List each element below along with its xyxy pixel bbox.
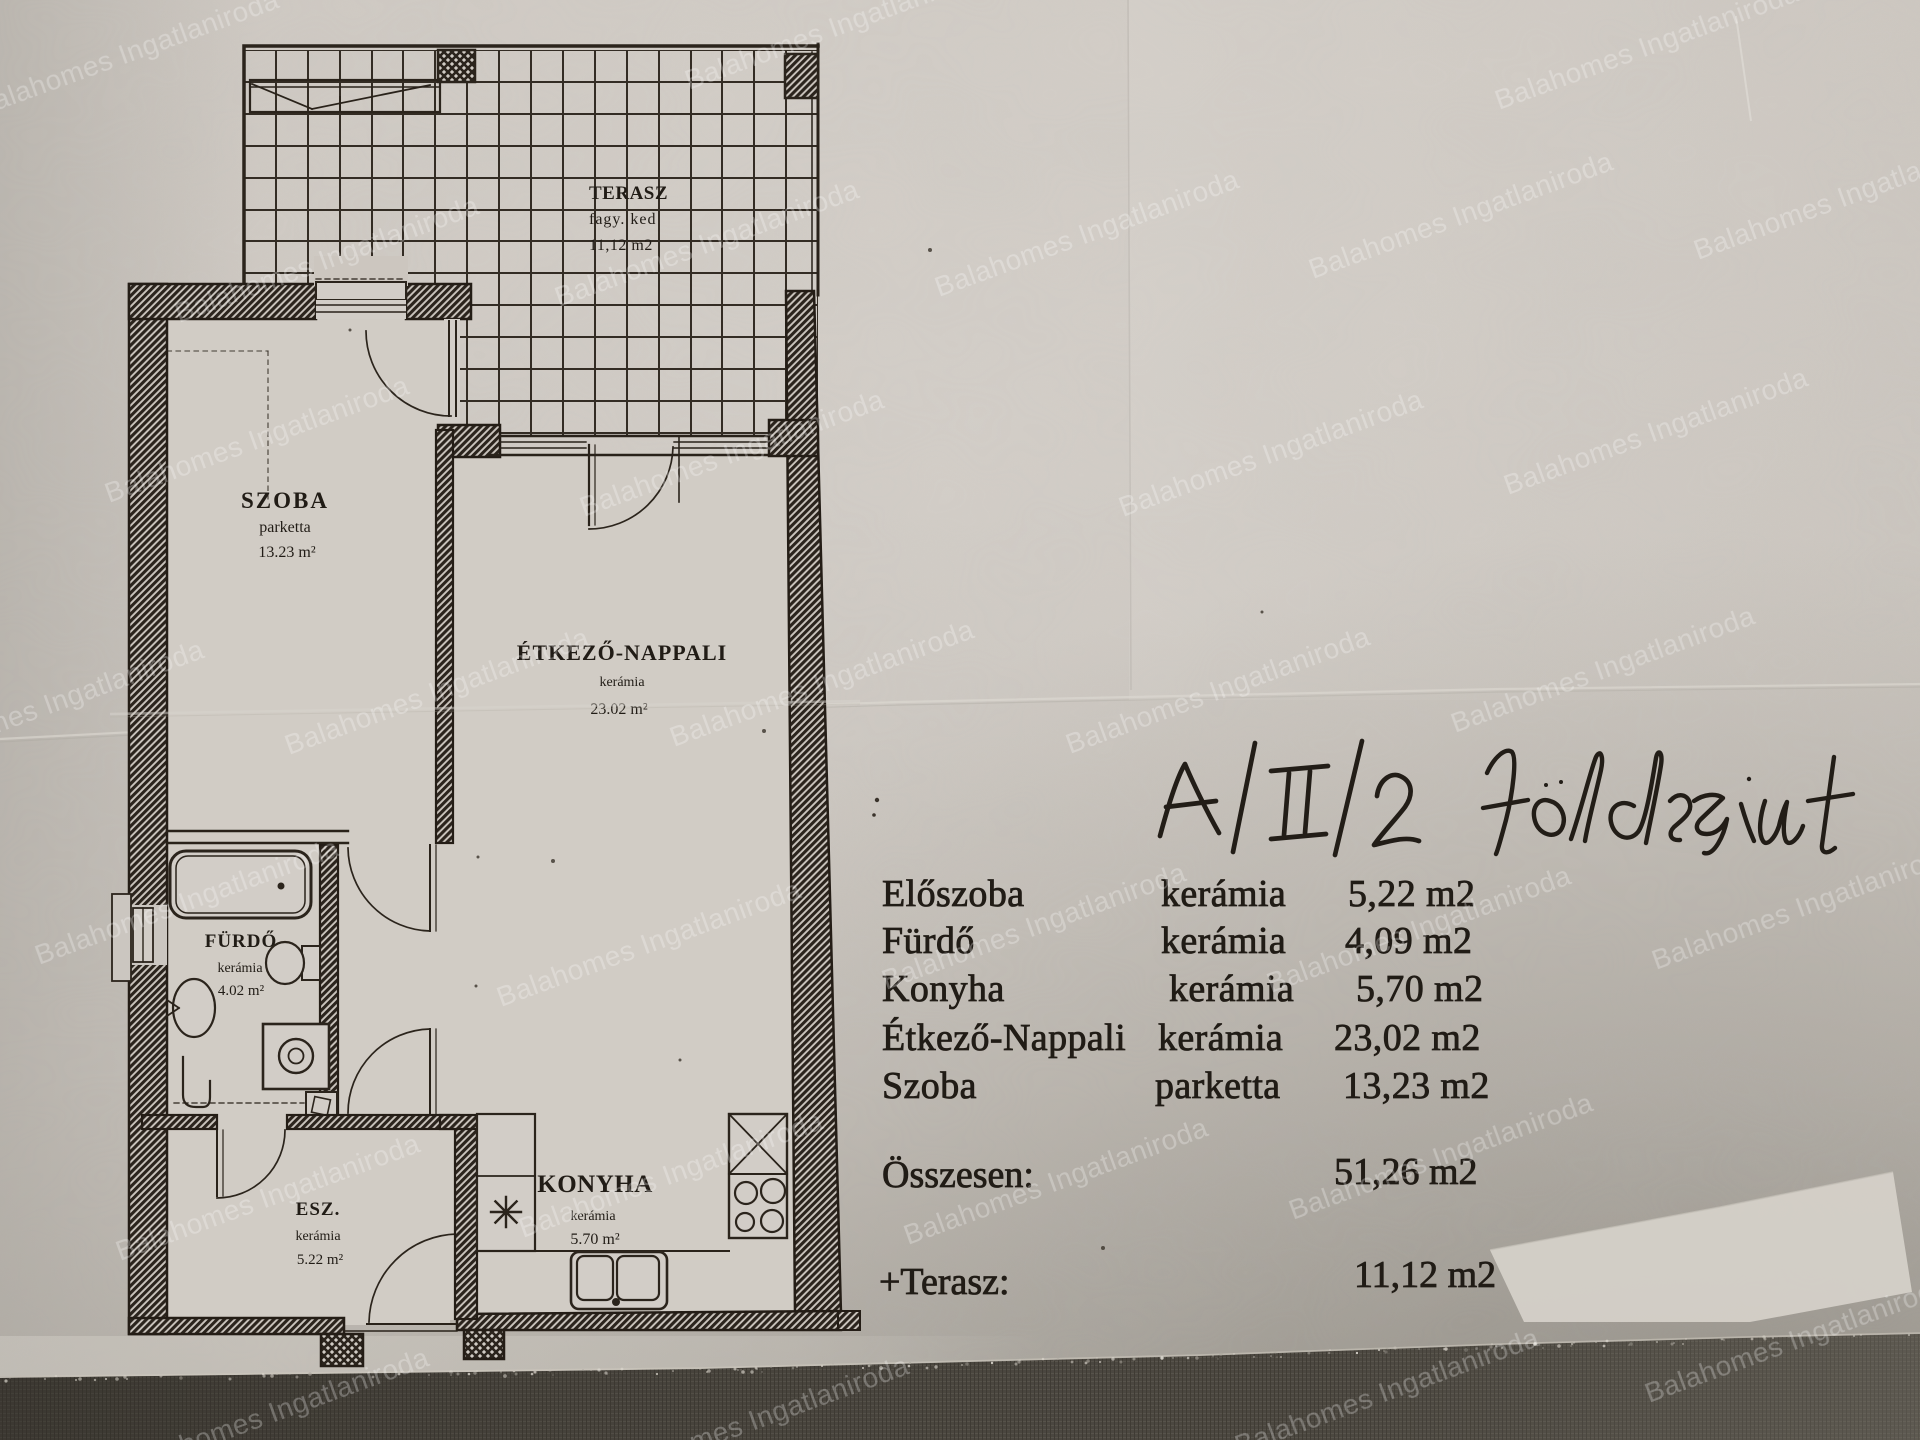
svg-text:+Terasz:: +Terasz: [879, 1261, 1010, 1303]
svg-text:kerámia: kerámia [295, 1229, 341, 1244]
svg-text:Előszoba: Előszoba [882, 873, 1025, 915]
svg-text:kerámia: kerámia [1161, 920, 1286, 962]
svg-text:5,70 m2: 5,70 m2 [1356, 968, 1483, 1010]
svg-text:kerámia: kerámia [1158, 1017, 1283, 1059]
svg-text:5.22 m²: 5.22 m² [297, 1252, 344, 1268]
svg-text:13.23 m²: 13.23 m² [258, 544, 315, 561]
svg-text:11,12 m2: 11,12 m2 [1354, 1254, 1496, 1296]
svg-text:fagy. ked: fagy. ked [589, 211, 657, 228]
svg-text:parketta: parketta [1155, 1065, 1281, 1107]
svg-text:parketta: parketta [259, 519, 311, 536]
svg-text:4.02 m²: 4.02 m² [218, 983, 265, 999]
svg-text:TERASZ: TERASZ [589, 183, 668, 204]
svg-text:SZOBA: SZOBA [241, 488, 329, 513]
svg-text:kerámia: kerámia [217, 961, 263, 976]
svg-text:5.70 m²: 5.70 m² [570, 1231, 619, 1248]
svg-text:13,23 m2: 13,23 m2 [1343, 1065, 1490, 1107]
svg-text:FÜRDŐ: FÜRDŐ [205, 930, 278, 952]
svg-text:kerámia: kerámia [599, 675, 645, 690]
svg-text:23,02 m2: 23,02 m2 [1334, 1017, 1481, 1059]
svg-text:Étkező-Nappali: Étkező-Nappali [882, 1017, 1126, 1059]
svg-text:ESZ.: ESZ. [296, 1199, 341, 1220]
svg-text:Szoba: Szoba [882, 1065, 977, 1107]
